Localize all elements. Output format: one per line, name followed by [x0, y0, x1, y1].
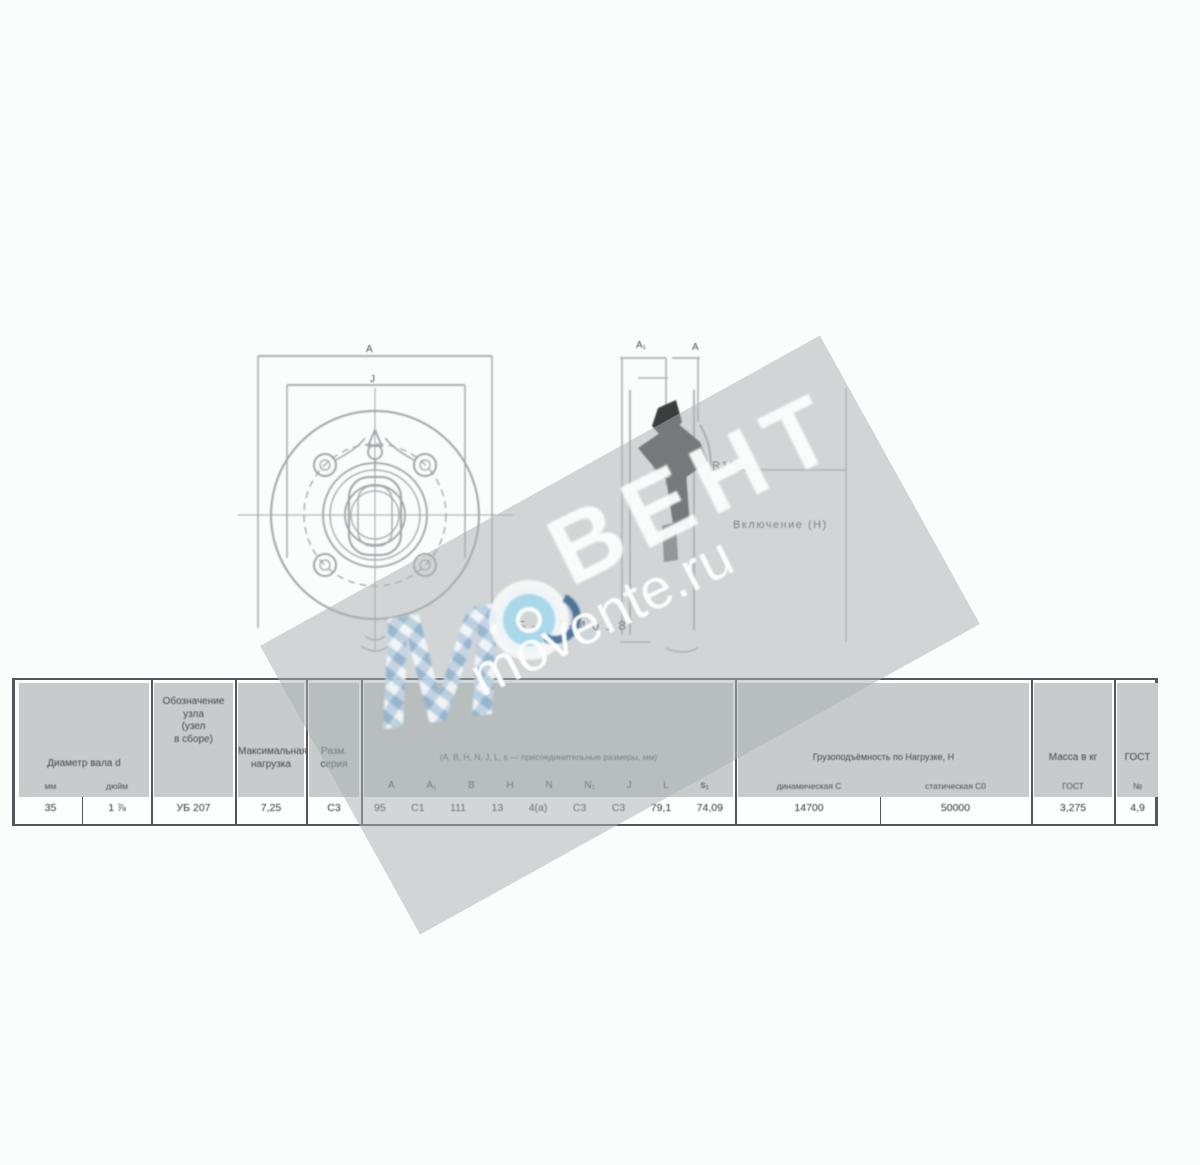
- table-divider: [1031, 680, 1033, 824]
- side-dim-label-a: А: [692, 342, 699, 353]
- max-load-value: 7,25: [238, 802, 304, 815]
- front-dim-label-outer: А: [366, 344, 373, 355]
- gost-header: ГОСТ: [1117, 752, 1158, 765]
- unit-header-line: (узел: [154, 721, 233, 734]
- shaft-inch-label: дюйм: [85, 781, 149, 792]
- mass-value: 3,275: [1034, 802, 1112, 815]
- table-divider: [151, 680, 153, 824]
- shaft-inch-value: 1 ⅞: [85, 802, 149, 815]
- unit-designation-header: Обозначение узла (узел в сборе): [154, 696, 233, 746]
- unit-header-line: Обозначение: [154, 696, 233, 709]
- cell-fill: [19, 683, 149, 797]
- capacity-dynamic-label: динамическая С: [738, 781, 880, 792]
- dim-letter: s₁: [701, 780, 709, 793]
- shaft-diameter-header: Диаметр вала d: [19, 758, 149, 771]
- gost-sub-label: №: [1117, 781, 1158, 792]
- page: А J А₁ А ≈ R1/8 Включение (Н) УВБ-07-401…: [0, 0, 1200, 1165]
- unit-header-line: в сборе): [154, 734, 233, 747]
- unit-designation-value: УБ 207: [154, 802, 233, 815]
- mass-header: Масса в кг: [1034, 752, 1112, 765]
- mass-sub-label: ГОСТ: [1034, 781, 1112, 792]
- cell-fill: [1117, 683, 1158, 797]
- side-dim-label-a1: А₁: [636, 340, 646, 351]
- dim-value: 74,09: [697, 802, 723, 815]
- table-divider: [235, 680, 237, 824]
- cell-fill: [1034, 683, 1112, 797]
- capacity-header: Грузоподъёмность по Нагрузке, Н: [738, 752, 1029, 763]
- unit-header-line: узла: [154, 709, 233, 722]
- table-divider: [1114, 680, 1116, 824]
- front-dim-label-inner: J: [370, 374, 375, 385]
- bolt-hole-bottom-left: [314, 554, 336, 576]
- max-load-header-line: Максимальная: [238, 746, 304, 759]
- capacity-dynamic-value: 14700: [738, 802, 880, 815]
- gost-value: 4,9: [1117, 802, 1158, 815]
- capacity-static-label: статическая С0: [882, 781, 1029, 792]
- shaft-mm-value: 35: [19, 802, 82, 815]
- shaft-mm-label: мм: [19, 781, 82, 792]
- max-load-header: Максимальная нагрузка: [238, 746, 304, 771]
- capacity-static-value: 50000: [882, 802, 1029, 815]
- max-load-header-line: нагрузка: [238, 759, 304, 772]
